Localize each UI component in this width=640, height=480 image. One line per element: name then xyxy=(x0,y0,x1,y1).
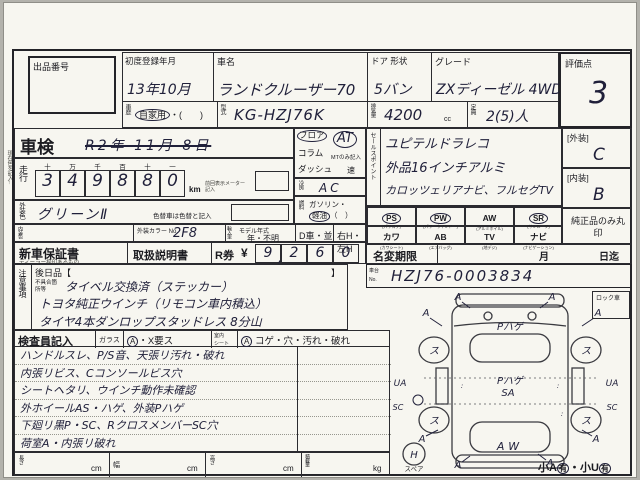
notice-line: トヨタ純正ウインチ（リモコン車内積込） xyxy=(39,295,267,312)
glass-value: A・X要ス xyxy=(127,333,173,347)
first-registration-cell: 初度登録年月 13年10月 xyxy=(122,52,214,102)
recycle-ticket-label: R券 xyxy=(215,247,234,263)
amount-digit: 2 xyxy=(281,244,307,263)
ua-mark-left: UA xyxy=(394,379,407,389)
cooling-label: 冷房 xyxy=(297,180,303,196)
car-name-label: 車名 xyxy=(217,55,235,68)
a-damage-mark: A xyxy=(454,292,462,303)
paint-code-value: 2F8 xyxy=(173,226,197,241)
chassis-row: 車台 No. HZJ76-0003834 xyxy=(366,264,632,288)
first-registration-value: 13年10月 xyxy=(127,79,191,99)
inspector-notes: ハンドルスレ、P/S音、天張リ汚れ・破れ 内張リビス、Cコンソールビス穴 シート… xyxy=(14,347,390,452)
sales-point-line: ユピテルドラレコ xyxy=(385,133,489,152)
divider xyxy=(109,453,110,477)
hail-mark: 有 xyxy=(557,463,569,474)
notice-line: タイヤ4本ダンロップスタッドレス 8分山 xyxy=(39,313,262,330)
rear-damage-note: AW xyxy=(496,440,523,453)
import-car-label: 輸入車 xyxy=(226,226,231,242)
divider xyxy=(295,225,296,243)
divider xyxy=(437,245,438,265)
length-unit: cm xyxy=(91,464,102,473)
equipment-cell-ps: PS(パワステ) xyxy=(367,207,416,226)
lot-number-box: 出品番号 xyxy=(28,56,116,114)
grade-cell: グレード ZXディーゼル 4WD xyxy=(431,52,559,102)
amount-comma: , xyxy=(278,251,282,265)
wheel-scratch-mark: ス xyxy=(429,346,439,357)
mileage-digit: 4 xyxy=(60,170,85,197)
sc-mark-left: SC xyxy=(393,403,404,412)
model-code-label: 型式 xyxy=(219,104,225,126)
interior-color-label: 内装色 xyxy=(17,226,22,242)
mileage-digit: 0 xyxy=(160,170,185,197)
equipment-cell-navi: ナビ(ナビゲーション) xyxy=(514,226,563,245)
cooling-row: 冷房 AC xyxy=(294,178,366,196)
divider xyxy=(95,331,96,348)
cowl-circle xyxy=(484,312,492,320)
mileage-unit: km xyxy=(189,185,201,194)
seat-value: A コゲ・穴・汚れ・破れ xyxy=(241,333,350,347)
capacity-label: 定員 xyxy=(469,104,475,126)
history-value-wrap: 自家用・( ) xyxy=(135,108,203,121)
dimensions-row: 長さ cm 幅 cm 高さ cm 積載量 kg xyxy=(14,452,390,476)
defect-label: 不具合箇所等 xyxy=(35,280,61,293)
inspector-header: 検査員記入 ガラス A・X要ス 室内 シート A コゲ・穴・汚れ・破れ xyxy=(14,330,390,347)
shift-selected: AT xyxy=(333,131,357,148)
seat-label-1: 室内 xyxy=(214,332,224,339)
hail-note: 小A有・小U有 xyxy=(538,459,611,475)
equipment-cell-aw: AW(アルミホイル) xyxy=(465,207,514,226)
displacement-value: 4200 xyxy=(384,106,422,124)
history-use: 自家用 xyxy=(135,109,170,121)
height-label: 高さ xyxy=(208,455,214,475)
mileage-digit: 3 xyxy=(35,170,60,197)
sc-circle-left xyxy=(413,395,423,405)
divider xyxy=(31,265,32,331)
warranty-row: 新車保証書 ディーラー捺印あるもの 取扱説明書 R券 ¥ 9 , 2 6 0 xyxy=(14,242,366,264)
inspector-note-line: 内張リビス、Cコンソールビス穴 xyxy=(15,365,391,383)
model-code-cell: 型式 KG-HZJ76K xyxy=(217,101,368,128)
inspector-note-line: 外ホイールAS・ハゲ、外装Pハゲ xyxy=(15,400,391,418)
load-unit: kg xyxy=(373,464,381,473)
a-damage-mark: A xyxy=(418,434,426,445)
mileage-digit: 9 xyxy=(85,170,110,197)
exterior-color-value: グリーンⅡ xyxy=(37,204,109,224)
fuel-diesel-wrap: 軽油（ ） xyxy=(309,210,353,222)
width-unit: cm xyxy=(187,464,198,473)
hail-prefix: 小A xyxy=(538,462,557,474)
divider xyxy=(301,453,302,477)
interior-rating-box: [内装] B xyxy=(562,168,632,208)
a-arrow xyxy=(430,318,442,326)
car-name-cell: 車名 ランドクルーザー70 xyxy=(213,52,368,102)
name-change-label: 名変期限 xyxy=(373,248,417,264)
mileage-unit-note: 前回表示メーター記入 xyxy=(205,181,249,193)
side-step-left xyxy=(436,368,448,404)
divider xyxy=(297,347,298,452)
divider xyxy=(333,225,334,243)
wheel-scratch-mark: ス xyxy=(429,416,439,427)
exterior-rating-box: [外装] C xyxy=(562,128,632,168)
yen-sign: ¥ xyxy=(241,246,248,260)
dealer-car-label: D車・並 xyxy=(299,229,333,242)
wheel-scratch-mark: ス xyxy=(581,346,591,357)
notice-section: 注意事項 後日品【 】 不具合箇所等 タイベル交換済（ステッカー） トヨタ純正ウ… xyxy=(14,264,348,330)
hail-mid: ・小U xyxy=(569,462,599,474)
divider xyxy=(211,243,212,265)
exterior-color-label: 外装色 xyxy=(17,202,24,223)
divider xyxy=(211,331,212,348)
fuel-paren: （ ） xyxy=(330,211,353,220)
divider xyxy=(127,243,128,265)
equipment-grid: PS(パワステ) PW(パワーウインドー) AW(アルミホイル) SR(サンルー… xyxy=(366,206,562,244)
a-damage-mark: A xyxy=(592,434,600,445)
a-arrow xyxy=(582,318,594,326)
load-label: 積載量 xyxy=(304,454,309,476)
score-label: 評価点 xyxy=(565,57,592,70)
notice-line: タイベル交換済（ステッカー） xyxy=(65,278,233,295)
hail-mark: 有 xyxy=(599,463,611,474)
name-change-row: 名変期限 月 日迄 xyxy=(366,244,632,264)
history-cell: 車歴 自家用・( ) xyxy=(122,101,218,128)
grade-value: ZXディーゼル 4WD xyxy=(436,79,562,99)
paint-code-label: 外装カラー No. xyxy=(137,226,178,235)
lot-number-label: 出品番号 xyxy=(33,60,69,73)
first-registration-label: 初度登録年月 xyxy=(125,55,176,67)
center-sa-note: SA xyxy=(501,388,514,399)
color-change-note: 色替車は色替と記入 xyxy=(153,210,212,220)
shift-option-floor: フロア xyxy=(297,130,327,142)
inspector-note-line: ハンドルスレ、P/S音、天張リ汚れ・破れ xyxy=(15,347,391,365)
chassis-number-value: HZJ76-0003834 xyxy=(391,267,534,285)
divider xyxy=(237,331,238,348)
svg-text::: : xyxy=(561,410,563,418)
door-shape-value: 5バン xyxy=(374,79,412,99)
auction-sheet-page: 現在色を記入↑ 出品番号 初度登録年月 13年10月 車名 ランドクルーザー70… xyxy=(0,0,640,480)
a-arrow xyxy=(462,456,470,462)
margin-note: 現在色を記入↑ xyxy=(1,150,12,250)
glass-label: ガラス xyxy=(99,335,120,345)
spare-label: スペア xyxy=(404,465,424,473)
manual-label: 取扱説明書 xyxy=(133,247,188,263)
amount-digit: 6 xyxy=(307,244,333,263)
name-change-until: 日迄 xyxy=(599,248,619,263)
spare-mark: H xyxy=(410,450,418,461)
windshield xyxy=(470,334,550,362)
shaken-label: 車検 xyxy=(20,133,54,158)
divider xyxy=(123,331,124,348)
fuel-gasoline: ガソリン・ xyxy=(309,199,347,210)
equipment-cell-leather: カワ(カワシート) xyxy=(367,226,416,245)
shift-box: フロア コラム ダッシュ AT MTのみ記入 速 xyxy=(294,128,366,178)
sales-point-box: セールスポイント ユピテルドラレコ 外品16インチアルミ カロッツェリアナビ、フ… xyxy=(366,128,562,206)
chassis-label-no: No. xyxy=(369,277,377,283)
interior-color-row: 内装色 外装カラー No. 2F8 輸入車 モデル年式 年・不明 D車・並 右H… xyxy=(14,224,366,242)
sc-mark-right: SC xyxy=(607,403,618,412)
svg-text::: : xyxy=(461,382,463,390)
a-damage-mark: A xyxy=(422,308,430,319)
chassis-label: 車台 xyxy=(369,267,379,274)
sales-point-line: 外品16インチアルミ xyxy=(385,157,505,176)
displacement-unit: cc xyxy=(444,116,451,123)
divider xyxy=(133,225,134,243)
inspector-note-line: シートヘタリ、ウインチ動作未確認 xyxy=(15,382,391,400)
cowl-circle xyxy=(528,312,536,320)
inspector-note-line: 荷室A・内張リ破れ xyxy=(15,435,391,453)
equipment-cell-pw: PW(パワーウインドー) xyxy=(416,207,465,226)
exterior-rating-label: [外装] xyxy=(567,132,589,144)
exterior-rating-value: C xyxy=(593,145,605,165)
interior-rating-label: [内装] xyxy=(567,172,589,184)
exterior-color-row: 外装色 グリーンⅡ 色替車は色替と記入 xyxy=(14,200,294,224)
mileage-label: 走行 xyxy=(18,165,27,197)
seat-label-2: シート xyxy=(214,340,229,347)
hood-damage-note: Pハゲ xyxy=(497,321,525,333)
amount-digit: 0 xyxy=(333,244,359,263)
shaken-row: 車検 R2年 11月 8日 xyxy=(14,128,294,158)
equipment-cell-sr: SR(サンルーフ) xyxy=(514,207,563,226)
car-name-value: ランドクルーザー70 xyxy=(217,79,355,100)
genuine-parts-note: 純正品のみ丸印 xyxy=(562,208,632,244)
model-code-value: KG-HZJ76K xyxy=(234,106,325,124)
history-paren: ・( ) xyxy=(170,110,203,120)
center-damage-note: Pハゲ xyxy=(497,375,525,387)
wheel-scratch-mark: ス xyxy=(581,416,591,427)
capacity-cell: 定員 2(5)人 xyxy=(467,101,559,128)
notice-label: 注意事項 xyxy=(18,269,26,327)
a-damage-mark: A xyxy=(454,460,462,471)
grade-label: グレード xyxy=(435,55,471,68)
shift-option-column: コラム xyxy=(298,147,323,159)
color-change-box xyxy=(231,204,289,221)
svg-text::: : xyxy=(557,382,559,390)
fuel-label: 燃料 xyxy=(297,200,303,222)
a-damage-mark: A xyxy=(548,292,556,303)
inspector-note-line: 下廻リ黒P・SC、RクロスメンバーSC穴 xyxy=(15,417,391,435)
mileage-digit: 8 xyxy=(135,170,160,197)
equipment-cell-tv: TV(地デジ) xyxy=(465,226,514,245)
displacement-label: 排気量 xyxy=(369,103,375,127)
score-box: 評価点 3 xyxy=(559,52,632,128)
height-unit: cm xyxy=(283,464,294,473)
lock-car-label: ロック車 xyxy=(596,293,620,302)
mileage-row: 走行 十 万 千 百 十 一 3 4 9 8 8 0 km 前回表示メーター記入 xyxy=(14,158,294,200)
interior-rating-value: B xyxy=(593,185,605,205)
divider xyxy=(205,453,206,477)
later-parts-close: 】 xyxy=(331,266,340,279)
mileage-extra-box xyxy=(255,171,289,191)
ua-mark-right: UA xyxy=(606,379,619,389)
mileage-digit: 8 xyxy=(110,170,135,197)
displacement-cell: 排気量 4200 cc xyxy=(367,101,468,128)
divider xyxy=(380,129,381,207)
capacity-value: 2(5)人 xyxy=(486,106,529,126)
fuel-row: 燃料 ガソリン・ 軽油（ ） xyxy=(294,196,366,224)
speed-label: 速 xyxy=(347,165,355,176)
sales-point-label: セールスポイント xyxy=(369,132,375,204)
width-label: 幅 xyxy=(113,460,120,470)
name-change-month: 月 xyxy=(539,248,549,263)
cooling-value: AC xyxy=(319,181,342,195)
fuel-diesel: 軽油 xyxy=(309,211,330,222)
shift-option-dash: ダッシュ xyxy=(298,163,332,175)
history-label: 車歴 xyxy=(124,104,130,126)
door-shape-cell: ドア 形状 5バン xyxy=(367,52,432,102)
length-label: 長さ xyxy=(17,455,23,475)
sales-point-line: カロッツェリアナビ、フルセグTV xyxy=(385,182,553,198)
side-step-right xyxy=(572,368,584,404)
door-shape-label: ドア 形状 xyxy=(371,55,407,67)
mt-only-note: MTのみ記入 xyxy=(331,153,365,161)
lock-car-box: ロック車 xyxy=(592,291,630,319)
shaken-date: R2年 11月 8日 xyxy=(85,135,211,155)
equipment-cell-airbag: AB(エアバッグ) xyxy=(416,226,465,245)
score-value: 3 xyxy=(589,76,608,111)
